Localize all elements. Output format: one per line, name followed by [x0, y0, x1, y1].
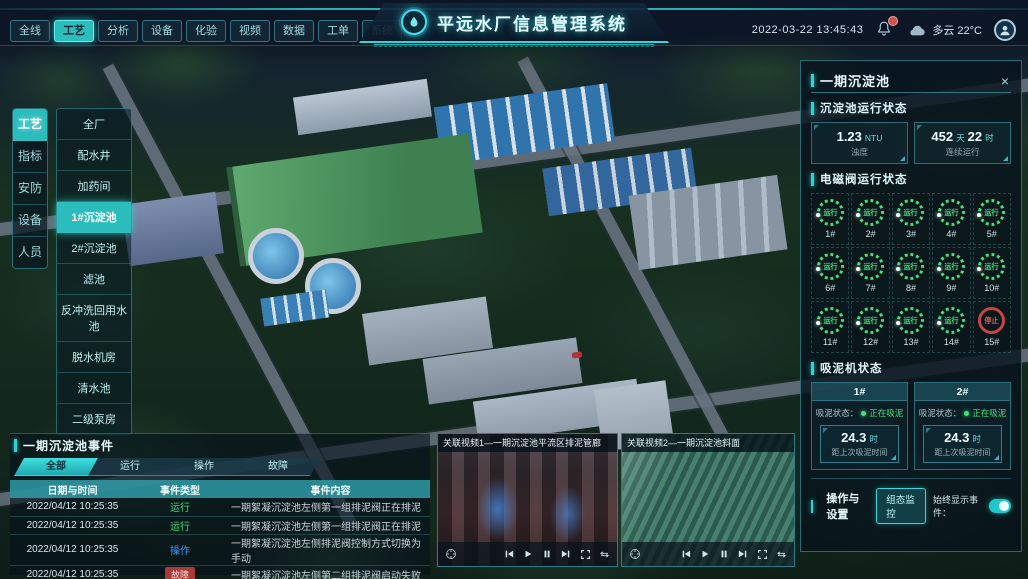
- mud-machine-card: 2# 吸泥状态： 正在吸泥 24.3 时 距上次吸泥时间: [914, 382, 1011, 470]
- valve-id: 1#: [825, 229, 835, 239]
- loop-icon[interactable]: [775, 548, 787, 560]
- video-2-controls: [622, 542, 794, 566]
- mud-status-value: 正在吸泥: [972, 407, 1006, 419]
- video-panel-1: 关联视频1—一期沉淀池平流区排泥管廊: [437, 433, 618, 567]
- valve-id: 14#: [944, 337, 959, 347]
- uptime-days-value: 452: [931, 129, 953, 144]
- detail-panel-title: 一期沉淀池: [820, 71, 999, 90]
- mud-section-title: 吸泥机状态: [820, 360, 883, 376]
- menu-item-quanchang[interactable]: 全厂: [57, 109, 131, 140]
- mud-machine-name: 2#: [915, 383, 1010, 401]
- pool-status-header: 沉淀池运行状态: [811, 99, 1011, 117]
- fault-badge: 故障: [165, 567, 195, 579]
- column-header-content: 事件内容: [225, 480, 430, 498]
- video-1-controls: [438, 542, 617, 566]
- previous-icon[interactable]: [680, 548, 692, 560]
- events-table-header: 日期与时间 事件类型 事件内容: [10, 480, 430, 498]
- turbidity-value: 1.23: [837, 129, 862, 144]
- mud-time-unit: 时: [869, 433, 878, 445]
- mud-time-stat: 24.3 时 距上次吸泥时间: [923, 425, 1002, 463]
- title-accent-bar: [811, 74, 814, 87]
- table-row: 2022/04/12 10:25:35 运行 一期絮凝沉淀池左侧第一组排泥阀正在…: [10, 498, 430, 516]
- valve-status: 运行: [985, 261, 999, 271]
- next-icon[interactable]: [560, 548, 572, 560]
- valve-status-ring: 运行: [857, 307, 884, 334]
- event-time: 2022/04/12 10:25:35: [10, 534, 135, 565]
- video-1-title: 关联视频1—一期沉淀池平流区排泥管廊: [438, 434, 617, 452]
- menu-item-jiayaojian[interactable]: 加药间: [57, 171, 131, 202]
- uptime-label: 连续运行: [945, 146, 979, 158]
- side-tab-gongyi[interactable]: 工艺: [13, 109, 47, 141]
- event-tab-operate[interactable]: 操作: [162, 458, 246, 476]
- nav-tab-gongyi[interactable]: 工艺: [54, 20, 94, 42]
- settings-title: 操作与设置: [826, 490, 869, 522]
- left-tab-strip: 工艺 指标 安防 设备 人员: [12, 108, 48, 269]
- event-time: 2022/04/12 10:25:35: [10, 516, 135, 534]
- mud-machines: 1# 吸泥状态： 正在吸泥 24.3 时 距上次吸泥时间 2# 吸泥状态: [811, 382, 1011, 470]
- turbidity-stat: 1.23 NTU 浊度: [811, 122, 908, 164]
- column-header-time: 日期与时间: [10, 480, 135, 498]
- valve-status-ring: 运行: [938, 253, 965, 280]
- water-logo-icon: [401, 9, 427, 35]
- valve-status: 运行: [904, 261, 918, 271]
- nav-tab-fenxi[interactable]: 分析: [98, 20, 138, 42]
- valve-status-ring: 运行: [938, 307, 965, 334]
- nav-tab-gongdan[interactable]: 工单: [318, 20, 358, 42]
- menu-item-1-chendianchi[interactable]: 1#沉淀池: [57, 202, 131, 233]
- side-tab-renyuan[interactable]: 人员: [13, 237, 47, 268]
- valve-cell: 运行9#: [932, 247, 970, 299]
- valve-status-ring: 运行: [857, 199, 884, 226]
- valve-id: 4#: [946, 229, 956, 239]
- side-tab-anfang[interactable]: 安防: [13, 173, 47, 205]
- valve-status-ring: 运行: [817, 199, 844, 226]
- event-type: 运行: [135, 498, 225, 516]
- valve-section-title: 电磁阀运行状态: [820, 171, 908, 187]
- fullscreen-icon[interactable]: [756, 548, 768, 560]
- menu-item-qingshuichi[interactable]: 清水池: [57, 373, 131, 404]
- event-type: 故障: [135, 565, 225, 579]
- valve-id: 7#: [866, 283, 876, 293]
- valve-id: 15#: [984, 337, 999, 347]
- valve-status-ring: 运行: [817, 307, 844, 334]
- event-content: 一期絮凝沉淀池左侧排泥阀控制方式切换为手动: [225, 534, 430, 565]
- header-right: 2022-03-22 13:45:43 多云 22°C: [752, 19, 1016, 41]
- event-content: 一期絮凝沉淀池左侧第一组排泥阀正在排泥: [225, 516, 430, 534]
- ptz-control-icon[interactable]: [629, 548, 641, 560]
- valve-cell: 运行3#: [892, 193, 930, 245]
- valve-id: 8#: [906, 283, 916, 293]
- user-avatar[interactable]: [994, 19, 1016, 41]
- valve-status-ring: 运行: [817, 253, 844, 280]
- toggle-knob: [999, 501, 1009, 511]
- show-events-toggle-label: 始终显示事件：: [933, 493, 982, 519]
- valve-status: 运行: [823, 315, 837, 325]
- mud-machine-name: 1#: [812, 383, 907, 401]
- notification-bell-icon[interactable]: [875, 20, 895, 40]
- table-row: 2022/04/12 10:25:35 操作 一期絮凝沉淀池左侧排泥阀控制方式切…: [10, 534, 430, 565]
- pool-status-title: 沉淀池运行状态: [820, 100, 908, 116]
- valve-cell: 运行13#: [892, 301, 930, 353]
- previous-icon[interactable]: [503, 548, 515, 560]
- mud-time-stat: 24.3 时 距上次吸泥时间: [820, 425, 899, 463]
- valve-id: 10#: [984, 283, 999, 293]
- section-accent-bar: [811, 102, 814, 115]
- main-nav: 全线 工艺 分析 设备 化验 视频 数据 工单 系统: [10, 20, 402, 42]
- status-dot-icon: [964, 411, 969, 416]
- table-row: 2022/04/12 10:25:35 运行 一期絮凝沉淀池左侧第一组排泥阀正在…: [10, 516, 430, 534]
- turbidity-label: 浊度: [851, 146, 868, 158]
- top-header: 全线 工艺 分析 设备 化验 视频 数据 工单 系统 平远水厂信息管理系统 20…: [0, 0, 1028, 46]
- valve-status: 运行: [904, 207, 918, 217]
- valve-status: 运行: [985, 207, 999, 217]
- event-tab-fault[interactable]: 故障: [236, 458, 320, 476]
- ptz-control-icon[interactable]: [445, 548, 457, 560]
- process-menu: 全厂 配水井 加药间 1#沉淀池 2#沉淀池 滤池 反冲洗回用水池 脱水机房 清…: [56, 108, 132, 435]
- scada-monitor-button[interactable]: 组态监控: [876, 488, 926, 524]
- valve-status: 运行: [863, 261, 877, 271]
- table-row: 2022/04/12 10:25:35 故障 一期絮凝沉淀池左侧第二组排泥阀启动…: [10, 565, 430, 579]
- pause-icon[interactable]: [718, 548, 730, 560]
- video-panel-2: 关联视频2—一期沉淀池斜面: [621, 433, 795, 567]
- valve-id: 11#: [823, 337, 837, 347]
- play-icon[interactable]: [699, 548, 711, 560]
- settings-section: 操作与设置 组态监控 始终显示事件：: [811, 478, 1011, 524]
- app-window: 全线 工艺 分析 设备 化验 视频 数据 工单 系统 平远水厂信息管理系统 20…: [0, 0, 1028, 579]
- menu-item-fanchongxi[interactable]: 反冲洗回用水池: [57, 295, 131, 342]
- section-accent-bar: [811, 500, 813, 513]
- event-filter-tabs: 全部 运行 操作 故障: [14, 458, 430, 476]
- fullscreen-icon[interactable]: [579, 548, 591, 560]
- side-tab-shebei[interactable]: 设备: [13, 205, 47, 237]
- valve-cell: 运行1#: [811, 193, 849, 245]
- column-header-type: 事件类型: [135, 480, 225, 498]
- nav-tab-shebei[interactable]: 设备: [142, 20, 182, 42]
- show-events-toggle[interactable]: [989, 499, 1011, 513]
- valve-status: 运行: [904, 315, 918, 325]
- event-tab-all[interactable]: 全部: [14, 458, 98, 476]
- detail-panel-header: 一期沉淀池 ×: [811, 69, 1011, 93]
- valve-status-ring: 运行: [978, 253, 1005, 280]
- mud-status-value: 正在吸泥: [869, 407, 903, 419]
- event-tab-run[interactable]: 运行: [88, 458, 172, 476]
- uptime-stat: 452 天 22 时 连续运行: [914, 122, 1011, 164]
- menu-item-tuoshuijifang[interactable]: 脱水机房: [57, 342, 131, 373]
- menu-item-erjibengfang[interactable]: 二级泵房: [57, 404, 131, 434]
- menu-item-lvchi[interactable]: 滤池: [57, 264, 131, 295]
- next-icon[interactable]: [737, 548, 749, 560]
- section-accent-bar: [811, 173, 814, 186]
- valve-id: 6#: [825, 283, 835, 293]
- valve-id: 9#: [946, 283, 956, 293]
- mud-time-caption: 距上次吸泥时间: [935, 447, 991, 458]
- valve-status: 运行: [944, 261, 958, 271]
- event-content: 一期絮凝沉淀池左侧第二组排泥阀启动失败: [225, 565, 430, 579]
- valve-status-ring: 运行: [897, 199, 924, 226]
- pool-stats: 1.23 NTU 浊度 452 天 22 时 连续运行: [811, 122, 1011, 164]
- valve-cell: 停止15#: [973, 301, 1011, 353]
- event-time: 2022/04/12 10:25:35: [10, 565, 135, 579]
- events-panel: 一期沉淀池事件 全部 运行 操作 故障 日期与时间 事件类型 事件内容 2022…: [10, 433, 430, 575]
- valve-status-ring: 运行: [897, 253, 924, 280]
- valve-section-header: 电磁阀运行状态: [811, 170, 1011, 188]
- valve-status: 运行: [863, 207, 877, 217]
- title-accent-bar: [14, 439, 17, 452]
- mud-time-value: 24.3: [944, 430, 969, 445]
- valve-status-ring: 运行: [978, 199, 1005, 226]
- detail-panel: 一期沉淀池 × 沉淀池运行状态 1.23 NTU 浊度 452 天 22 时: [800, 60, 1022, 552]
- valve-cell: 运行2#: [851, 193, 889, 245]
- valve-status: 运行: [944, 207, 958, 217]
- valve-status: 运行: [944, 315, 958, 325]
- side-tab-zhibiao[interactable]: 指标: [13, 141, 47, 173]
- mud-time-value: 24.3: [841, 430, 866, 445]
- mud-time-unit: 时: [972, 433, 981, 445]
- turbidity-unit: NTU: [865, 133, 882, 143]
- valve-status: 运行: [863, 315, 877, 325]
- mud-time-caption: 距上次吸泥时间: [832, 447, 888, 458]
- uptime-hours-unit: 时: [985, 132, 994, 144]
- menu-item-peishuijing[interactable]: 配水井: [57, 140, 131, 171]
- uptime-days-unit: 天: [956, 132, 965, 144]
- mud-status-label: 吸泥状态：: [919, 407, 962, 419]
- page-title: 平远水厂信息管理系统: [437, 10, 627, 35]
- nav-tab-shuju[interactable]: 数据: [274, 20, 314, 42]
- valve-status-ring: 运行: [897, 307, 924, 334]
- valve-status-ring: 停止: [978, 307, 1005, 334]
- nav-tab-quanxian[interactable]: 全线: [10, 20, 50, 42]
- nav-tab-shipin[interactable]: 视频: [230, 20, 270, 42]
- mud-section-header: 吸泥机状态: [811, 359, 1011, 377]
- valve-cell: 运行8#: [892, 247, 930, 299]
- valve-id: 2#: [866, 229, 876, 239]
- valve-id: 3#: [906, 229, 916, 239]
- play-icon[interactable]: [522, 548, 534, 560]
- datetime-text: 2022-03-22 13:45:43: [752, 24, 864, 36]
- close-icon[interactable]: ×: [999, 74, 1011, 88]
- valve-status-ring: 运行: [938, 199, 965, 226]
- nav-tab-huayan[interactable]: 化验: [186, 20, 226, 42]
- valve-grid: 运行1# 运行2# 运行3# 运行4# 运行5# 运行6# 运行7# 运行8# …: [811, 193, 1011, 353]
- notification-badge: [888, 16, 898, 26]
- event-type: 操作: [135, 534, 225, 565]
- weather-widget: 多云 22°C: [907, 22, 982, 38]
- valve-status: 运行: [823, 261, 837, 271]
- valve-cell: 运行7#: [851, 247, 889, 299]
- valve-id: 5#: [987, 229, 997, 239]
- event-time: 2022/04/12 10:25:35: [10, 498, 135, 516]
- mud-status-label: 吸泥状态：: [816, 407, 859, 419]
- valve-cell: 运行4#: [932, 193, 970, 245]
- events-table: 日期与时间 事件类型 事件内容 2022/04/12 10:25:35 运行 一…: [10, 480, 430, 579]
- valve-id: 12#: [863, 337, 878, 347]
- valve-cell: 运行11#: [811, 301, 849, 353]
- valve-cell: 运行6#: [811, 247, 849, 299]
- valve-cell: 运行5#: [973, 193, 1011, 245]
- weather-text: 多云 22°C: [932, 22, 982, 38]
- status-dot-icon: [861, 411, 866, 416]
- valve-status-ring: 运行: [857, 253, 884, 280]
- video-2-title: 关联视频2—一期沉淀池斜面: [622, 434, 794, 452]
- cloud-icon: [907, 24, 927, 37]
- section-accent-bar: [811, 362, 814, 375]
- event-content: 一期絮凝沉淀池左侧第一组排泥阀正在排泥: [225, 498, 430, 516]
- valve-status: 停止: [985, 315, 999, 325]
- pause-icon[interactable]: [541, 548, 553, 560]
- valve-status: 运行: [823, 207, 837, 217]
- mud-machine-card: 1# 吸泥状态： 正在吸泥 24.3 时 距上次吸泥时间: [811, 382, 908, 470]
- event-type: 运行: [135, 516, 225, 534]
- loop-icon[interactable]: [598, 548, 610, 560]
- valve-cell: 运行14#: [932, 301, 970, 353]
- events-panel-title: 一期沉淀池事件: [23, 437, 114, 454]
- valve-cell: 运行12#: [851, 301, 889, 353]
- valve-id: 13#: [903, 337, 918, 347]
- brand-underline: [374, 44, 654, 47]
- uptime-hours-value: 22: [968, 129, 982, 144]
- app-brand: 平远水厂信息管理系统: [359, 3, 669, 43]
- menu-item-2-chendianchi[interactable]: 2#沉淀池: [57, 233, 131, 264]
- valve-cell: 运行10#: [973, 247, 1011, 299]
